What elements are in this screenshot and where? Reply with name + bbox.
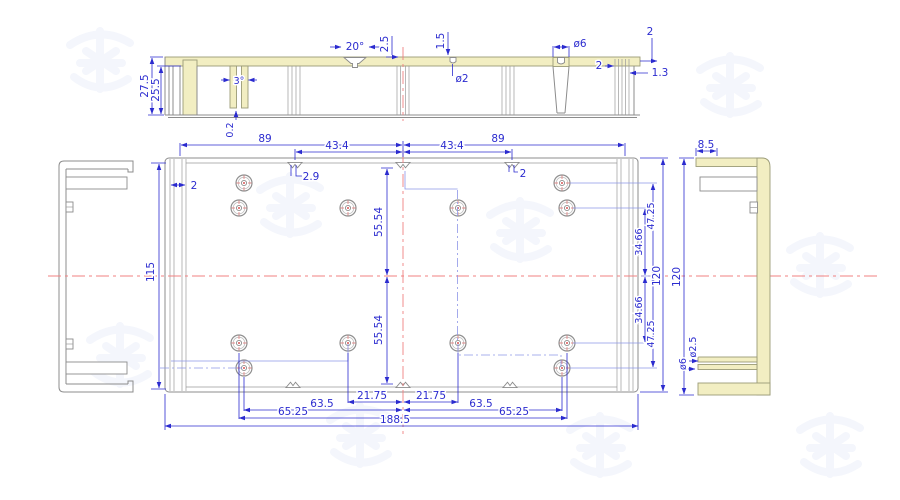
dim-rib-tip-gap: 0.2 — [225, 122, 236, 137]
dim-pitch-down: 55.54 — [373, 315, 385, 345]
section-view: 27.5 25.5 3° 0.2 20° 2.5 1.5 ø2 ø6 2 2 1… — [139, 26, 668, 138]
screw-hole — [559, 200, 575, 216]
screw-hole — [554, 175, 570, 191]
screw-hole — [236, 175, 252, 191]
dim-row-bottom-inner: 34.66 — [634, 296, 645, 323]
dim-col-mid-left: 63.5 — [310, 398, 333, 410]
dim-row-top-outer: 47.25 — [646, 202, 657, 229]
dim-wall: 2 — [191, 180, 198, 192]
dim-col-mid-right: 63.5 — [469, 398, 492, 410]
dim-boss-dia: ø6 — [573, 38, 586, 50]
screw-hole — [236, 360, 252, 376]
dim-half-right: 89 — [491, 133, 504, 145]
plan-bottom-notch — [503, 382, 517, 387]
cad-drawing-canvas: 27.5 25.5 3° 0.2 20° 2.5 1.5 ø2 ø6 2 2 1… — [0, 0, 900, 500]
dim-row-bottom-outer: 47.25 — [646, 320, 657, 347]
plan-wall-lines — [170, 159, 633, 391]
section-rib-right-leg — [242, 66, 249, 108]
dim-inner-height: 115 — [145, 262, 157, 282]
ext-lines — [553, 46, 569, 57]
right-view-wall — [757, 158, 770, 395]
dim-groove-width: 2 — [596, 60, 603, 72]
construction-line — [171, 344, 348, 361]
dim-boss-outer: ø6 — [678, 358, 689, 370]
dim-boss-inner: ø2.5 — [688, 337, 699, 358]
screw-hole — [559, 335, 575, 351]
section-right-grooves — [615, 59, 629, 115]
dim-half-left: 89 — [258, 133, 271, 145]
screw-hole — [231, 335, 247, 351]
right-view-rib — [700, 177, 757, 191]
plan-top-notch — [396, 162, 410, 167]
section-pilot-notch — [450, 58, 456, 64]
plan-top-notch — [505, 162, 519, 167]
dim-pilot-depth: 1.5 — [435, 33, 447, 50]
dim-groove-offset: 1.3 — [652, 67, 669, 79]
plan-top-notch — [288, 162, 302, 167]
dim-line-edge-step — [640, 38, 657, 61]
screw-hole — [231, 200, 247, 216]
section-boss-walls — [553, 67, 569, 114]
dim-outer-height: 120 — [651, 266, 663, 286]
dim-pitch-up: 55.54 — [373, 207, 385, 237]
dim-pilot-dia: ø2 — [455, 73, 468, 85]
technical-drawing: 27.5 25.5 3° 0.2 20° 2.5 1.5 ø2 ø6 2 2 1… — [0, 0, 900, 500]
dim-rib-slot: 3° — [234, 76, 245, 87]
left-view-bottom-rib — [66, 362, 127, 374]
dim-col-inner-right: 21.75 — [416, 390, 446, 402]
construction-line — [405, 171, 458, 189]
section-rib-left-leg — [230, 66, 237, 108]
section-left-wall — [183, 60, 197, 115]
dim-total-width: 188.5 — [380, 414, 410, 426]
ext-lines — [180, 141, 625, 160]
dim-inner-right: 43.4 — [440, 140, 464, 152]
dim-col-outer-left: 65.25 — [278, 406, 308, 418]
dim-notch-left: 2.9 — [303, 171, 320, 183]
screw-hole — [554, 360, 570, 376]
dim-inner-height: 25.5 — [150, 78, 162, 101]
dim-notch-depth: 2.5 — [379, 36, 391, 53]
right-view-bottom-flange — [698, 383, 770, 395]
dim-flange: 8.5 — [698, 139, 715, 151]
dim-row-top-inner: 34.66 — [634, 228, 645, 255]
section-rib-clusters — [288, 66, 514, 115]
right-view-top-flange — [696, 158, 760, 167]
dim-edge-step: 2 — [647, 26, 654, 38]
plan-bottom-notch — [286, 382, 300, 387]
right-view-boss-strip-upper — [698, 357, 757, 362]
section-boss-notch — [558, 58, 565, 65]
dim-col-inner-left: 21.75 — [357, 390, 387, 402]
dim-height: 120 — [671, 267, 683, 287]
construction-line — [458, 344, 561, 367]
dim-col-outer-right: 65.25 — [499, 406, 529, 418]
dim-inner-left: 43.4 — [325, 140, 349, 152]
right-side-view: 8.5 120 ø2.5 ø6 — [671, 139, 770, 395]
dim-notch-angle: 20° — [346, 41, 365, 53]
left-view-top-rib — [66, 177, 127, 189]
right-view-boss-strip-lower — [698, 365, 757, 370]
screw-hole — [340, 200, 356, 216]
dim-notch-right: 2 — [520, 168, 527, 180]
